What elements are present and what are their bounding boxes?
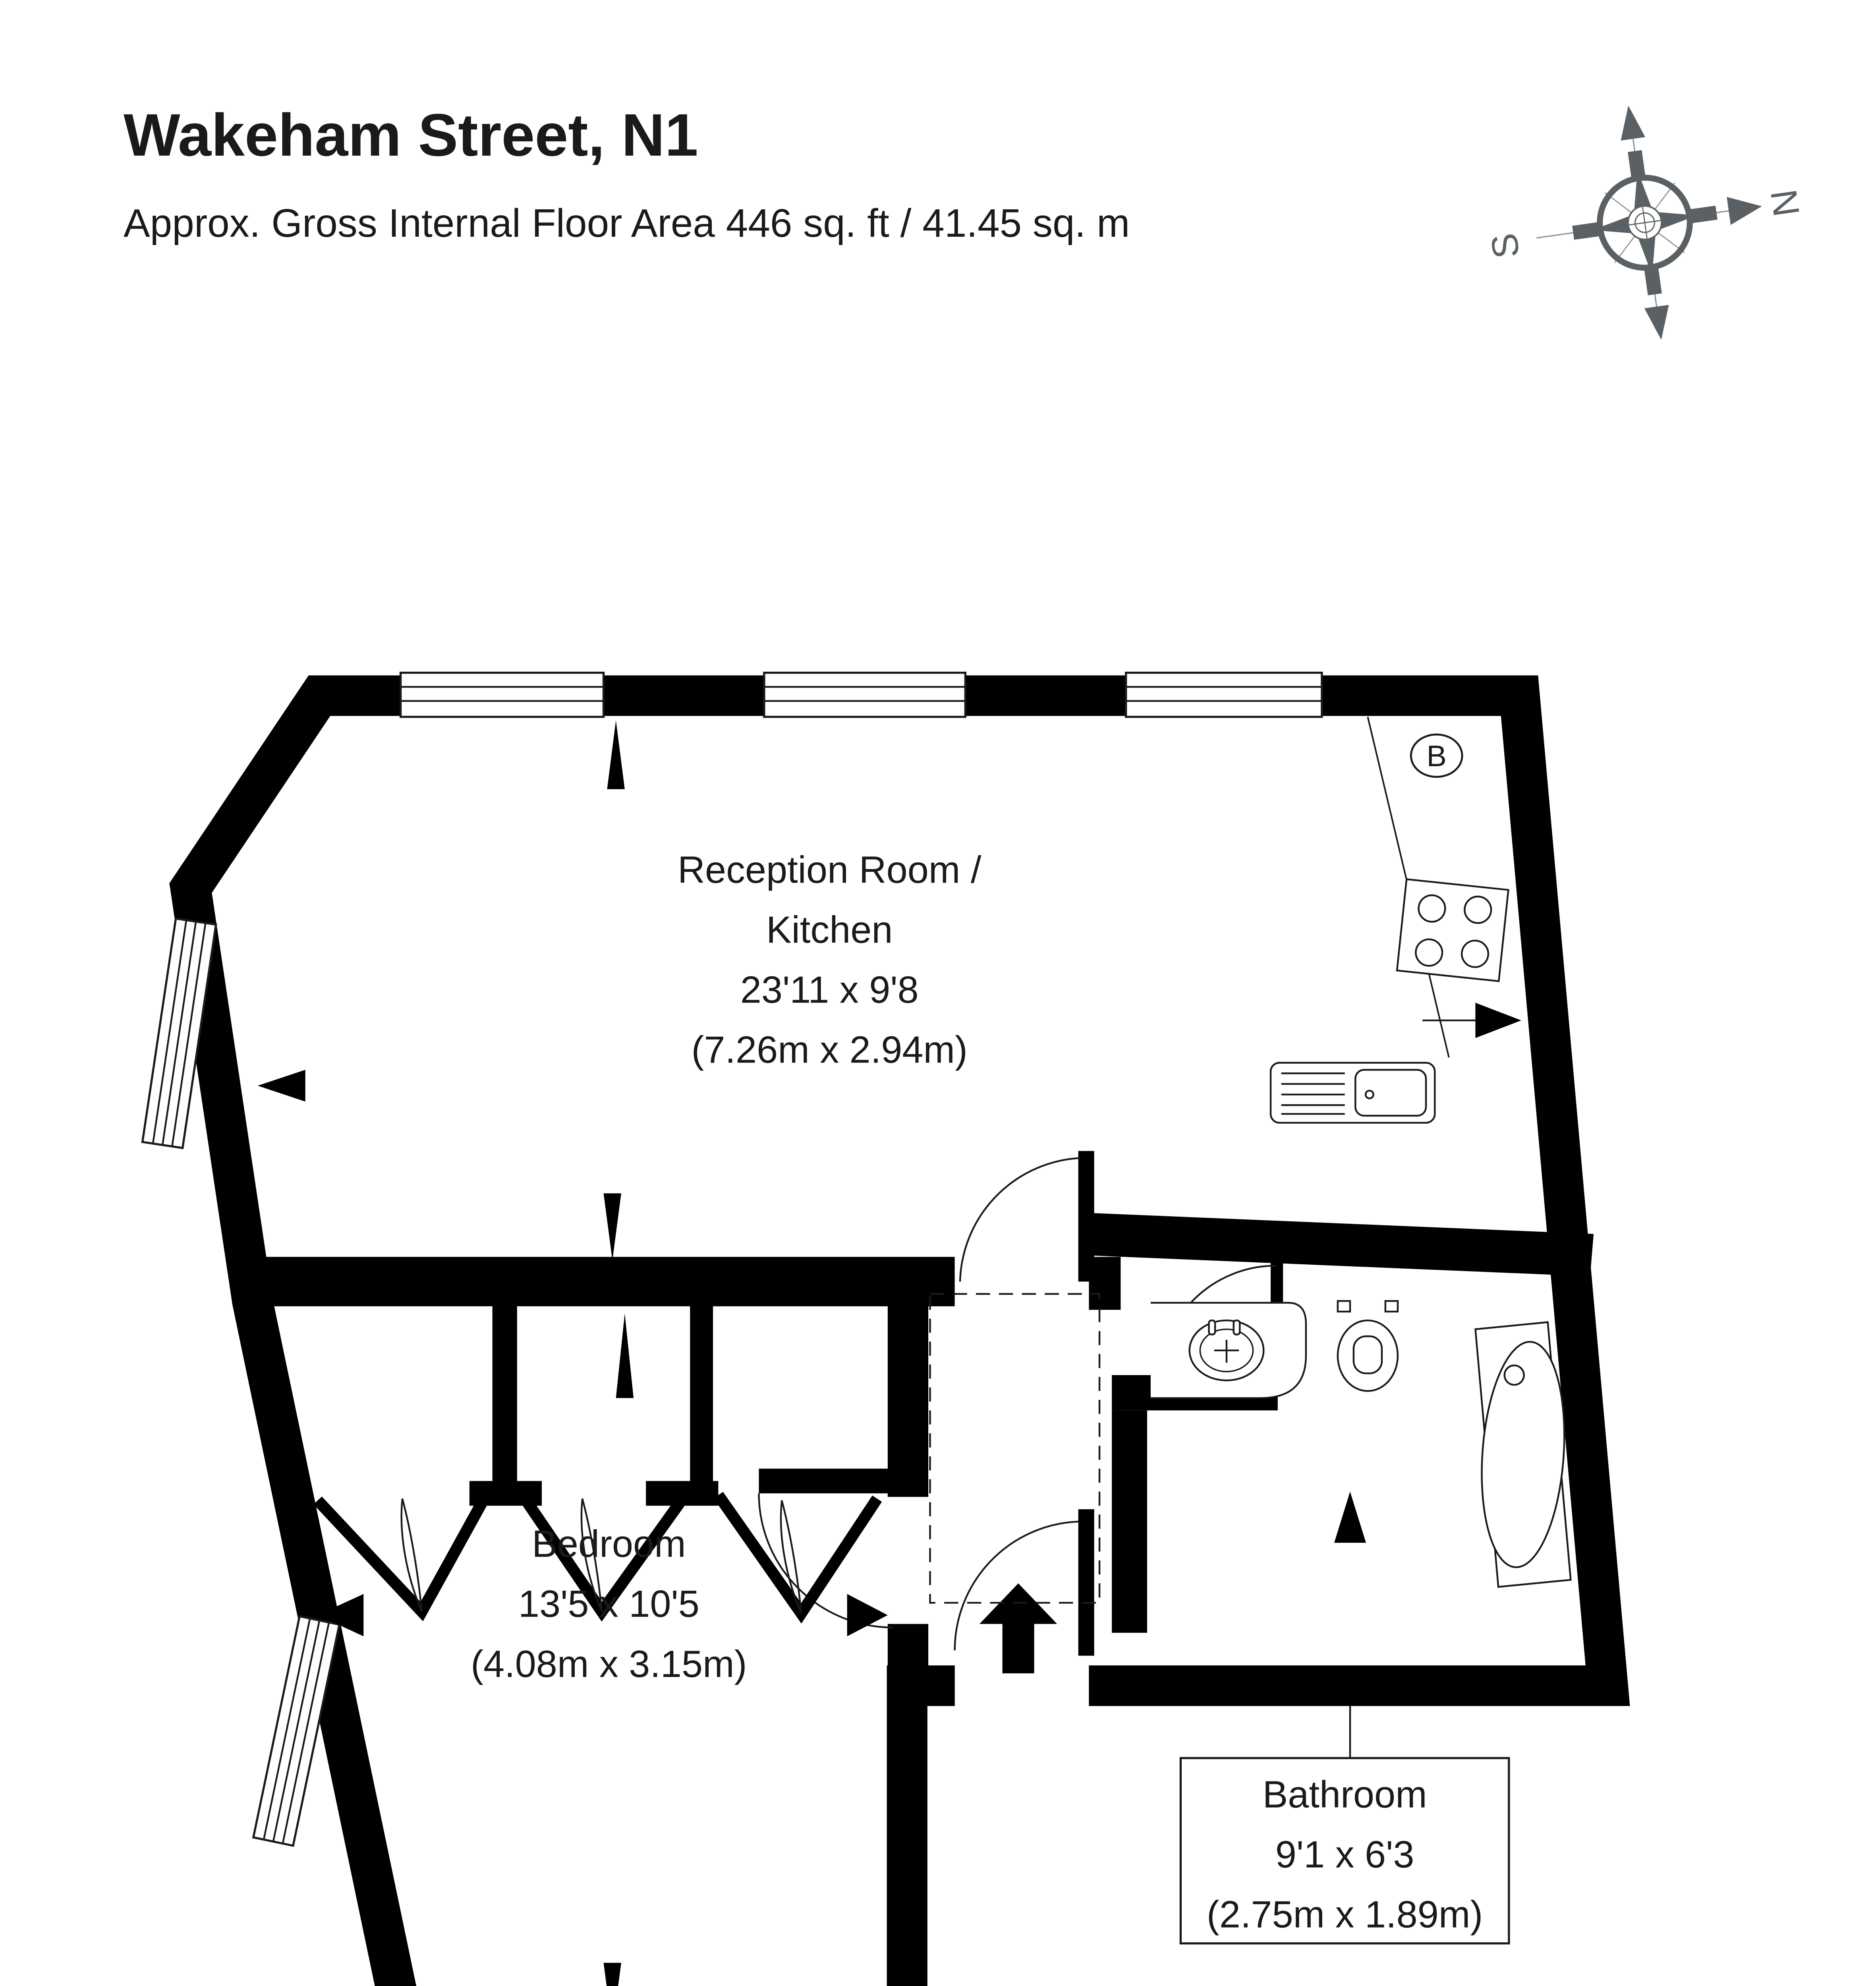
- bedroom-dims-imperial: 13'5 x 10'5: [518, 1583, 699, 1625]
- page-subtitle: Approx. Gross Internal Floor Area 446 sq…: [124, 201, 1130, 245]
- wall-reception-bedroom: [242, 1257, 955, 1306]
- compass-north-label: N: [1763, 187, 1807, 219]
- window-icon-top-3: [1126, 673, 1322, 717]
- reception-label-line2: Kitchen: [766, 909, 893, 951]
- dim-arrow-down-bedroom: [604, 1963, 621, 1986]
- window-icon-top-2: [764, 673, 966, 717]
- kitchen-sink-icon: [1271, 1063, 1435, 1123]
- window-icon-top-1: [401, 673, 604, 717]
- bathroom-dims-metric: (2.75m x 1.89m): [1207, 1894, 1483, 1936]
- bedroom-dims-metric: (4.08m x 3.15m): [471, 1643, 747, 1685]
- reception-door-leaf: [1078, 1151, 1094, 1282]
- bathroom-label: Bathroom: [1263, 1774, 1427, 1816]
- compass-up-arrow: [1616, 104, 1645, 141]
- compass-down-arrow: [1644, 305, 1673, 342]
- floorplan-canvas: Wakeham Street, N1 Approx. Gross Interna…: [0, 0, 1876, 1986]
- bedroom-door-leaf: [759, 1469, 895, 1493]
- page-title: Wakeham Street, N1: [124, 102, 698, 169]
- entry-door-leaf: [1078, 1509, 1094, 1656]
- floorplan-page: Wakeham Street, N1 Approx. Gross Interna…: [0, 0, 1876, 1986]
- basin-icon: [1151, 1303, 1306, 1398]
- reception-label-line1: Reception Room /: [678, 849, 981, 891]
- boiler-label: B: [1426, 740, 1446, 773]
- reception-door-opening: [955, 1250, 1089, 1314]
- wall-hall-bathroom: [1112, 1410, 1147, 1633]
- compass-south-label: S: [1483, 231, 1527, 261]
- bathroom-dims-imperial: 9'1 x 6'3: [1275, 1834, 1414, 1876]
- compass-north-arrow: [1727, 192, 1764, 225]
- reception-dims-metric: (7.26m x 2.94m): [692, 1029, 968, 1071]
- bedroom-label: Bedroom: [532, 1523, 686, 1565]
- bedroom-door-opening: [881, 1497, 935, 1624]
- compass-icon: N S: [1468, 83, 1822, 362]
- hob-icon: [1397, 879, 1508, 981]
- reception-dims-imperial: 23'11 x 9'8: [740, 969, 919, 1011]
